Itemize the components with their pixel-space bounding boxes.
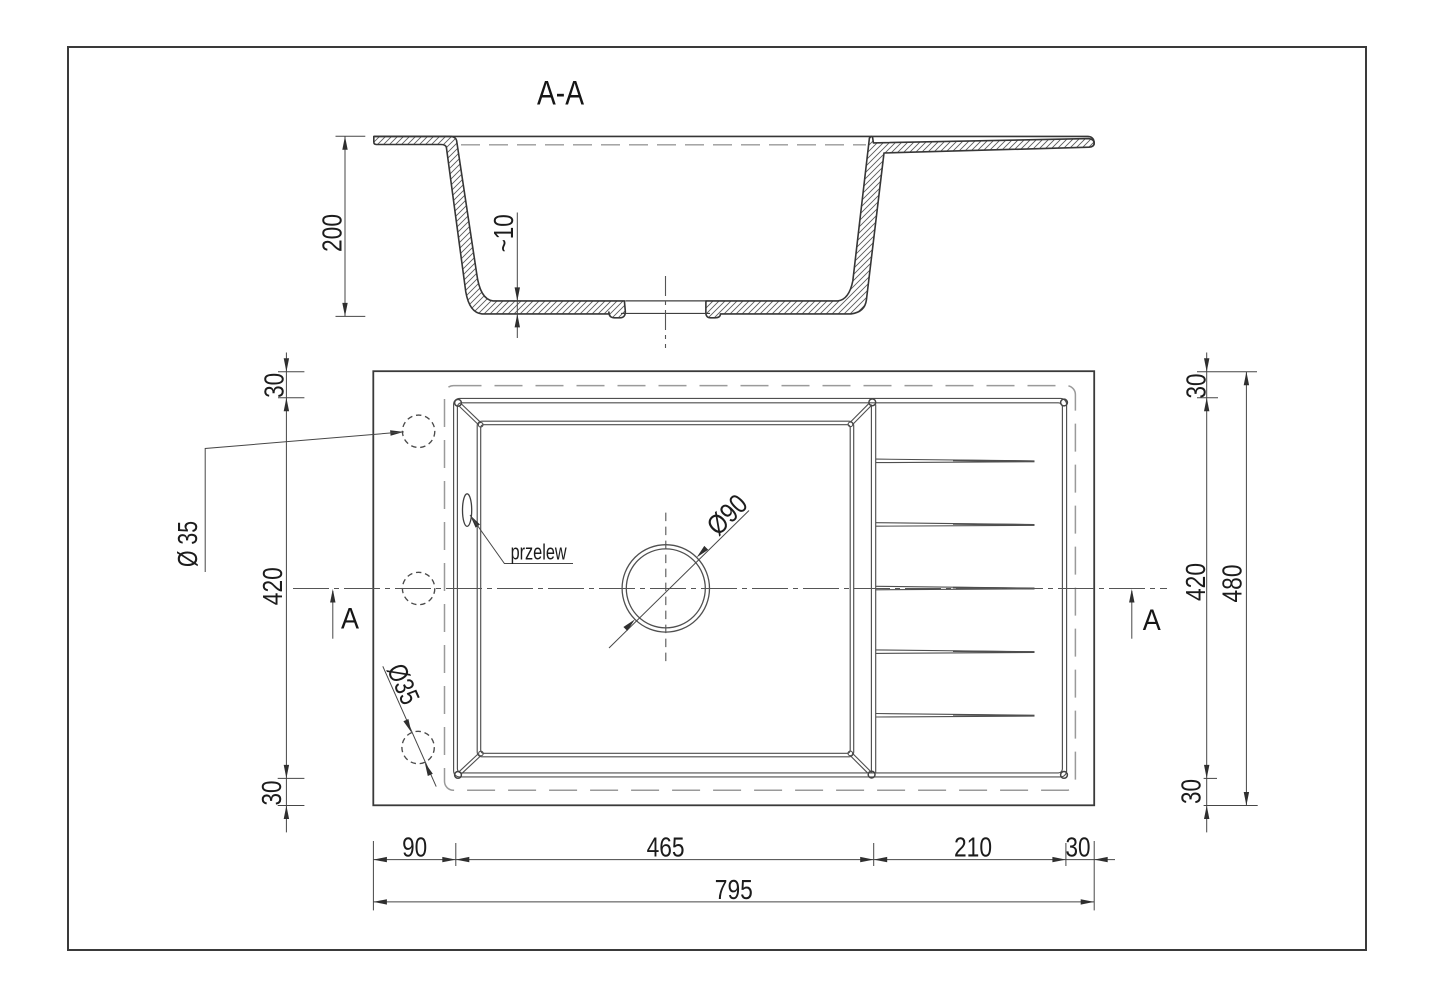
svg-text:30: 30 <box>256 781 287 806</box>
svg-text:30: 30 <box>1066 832 1091 863</box>
svg-text:A-A: A-A <box>537 75 584 113</box>
svg-text:480: 480 <box>1217 565 1248 603</box>
svg-text:420: 420 <box>257 567 288 605</box>
svg-text:210: 210 <box>954 832 992 863</box>
svg-text:Ø 35: Ø 35 <box>172 521 203 567</box>
svg-text:200: 200 <box>317 214 348 252</box>
svg-text:30: 30 <box>1180 374 1211 399</box>
svg-text:A: A <box>1143 604 1161 637</box>
svg-text:420: 420 <box>1180 563 1211 601</box>
svg-text:A: A <box>341 602 359 635</box>
svg-text:30: 30 <box>258 373 289 398</box>
svg-text:30: 30 <box>1176 779 1207 804</box>
svg-text:przelew: przelew <box>511 540 567 565</box>
svg-text:~10: ~10 <box>488 214 519 252</box>
svg-text:465: 465 <box>647 832 685 863</box>
svg-text:795: 795 <box>715 874 753 905</box>
svg-text:90: 90 <box>402 832 427 863</box>
